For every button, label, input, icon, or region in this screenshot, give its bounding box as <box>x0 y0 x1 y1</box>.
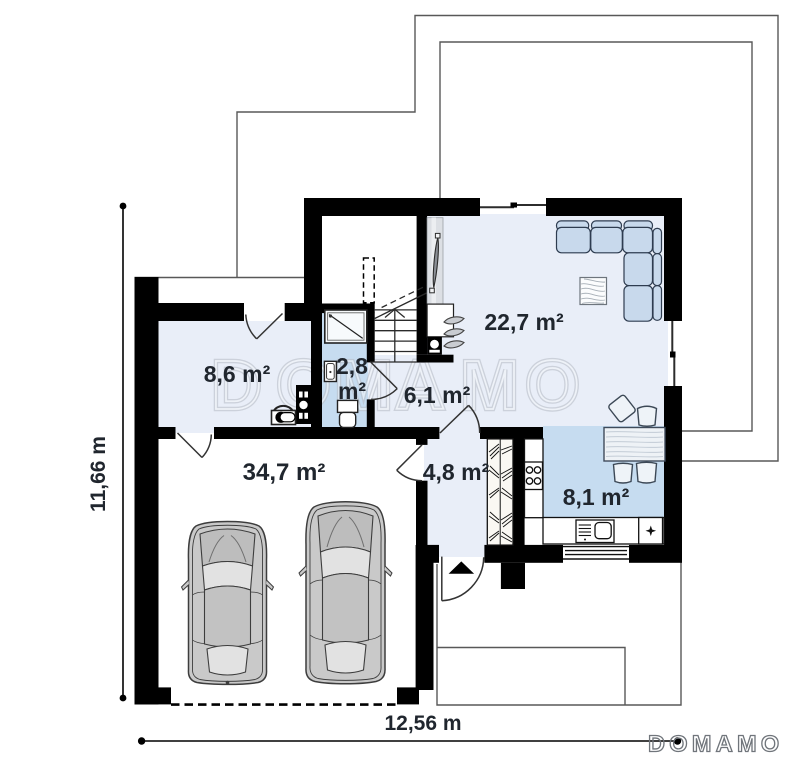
svg-text:11,66 m: 11,66 m <box>87 436 110 512</box>
svg-text:4,8 m²: 4,8 m² <box>423 459 490 485</box>
svg-text:8,1 m²: 8,1 m² <box>563 484 630 510</box>
svg-text:12,56 m: 12,56 m <box>384 712 461 735</box>
svg-text:m²: m² <box>338 378 366 404</box>
svg-text:8,6 m²: 8,6 m² <box>204 361 271 387</box>
svg-text:34,7 m²: 34,7 m² <box>243 459 326 486</box>
svg-text:2,8: 2,8 <box>336 353 368 379</box>
svg-text:22,7 m²: 22,7 m² <box>484 309 564 335</box>
svg-text:DOMAMO: DOMAMO <box>648 731 783 757</box>
svg-text:O: O <box>525 346 579 424</box>
svg-text:6,1 m²: 6,1 m² <box>404 382 471 408</box>
